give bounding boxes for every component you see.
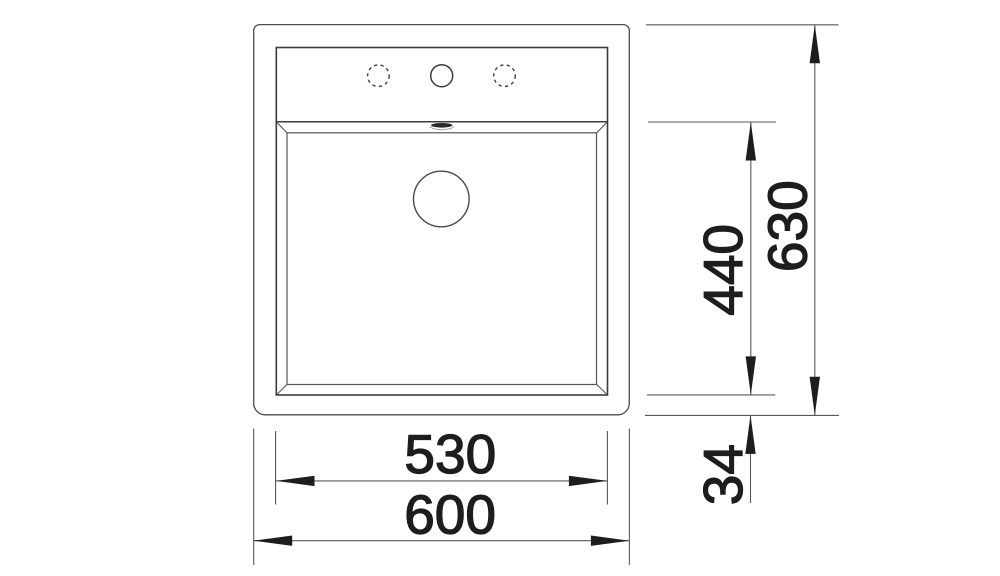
svg-text:600: 600 — [404, 483, 496, 545]
svg-text:440: 440 — [692, 224, 754, 316]
svg-text:34: 34 — [692, 444, 754, 505]
svg-text:630: 630 — [757, 180, 819, 272]
svg-text:530: 530 — [404, 423, 496, 485]
